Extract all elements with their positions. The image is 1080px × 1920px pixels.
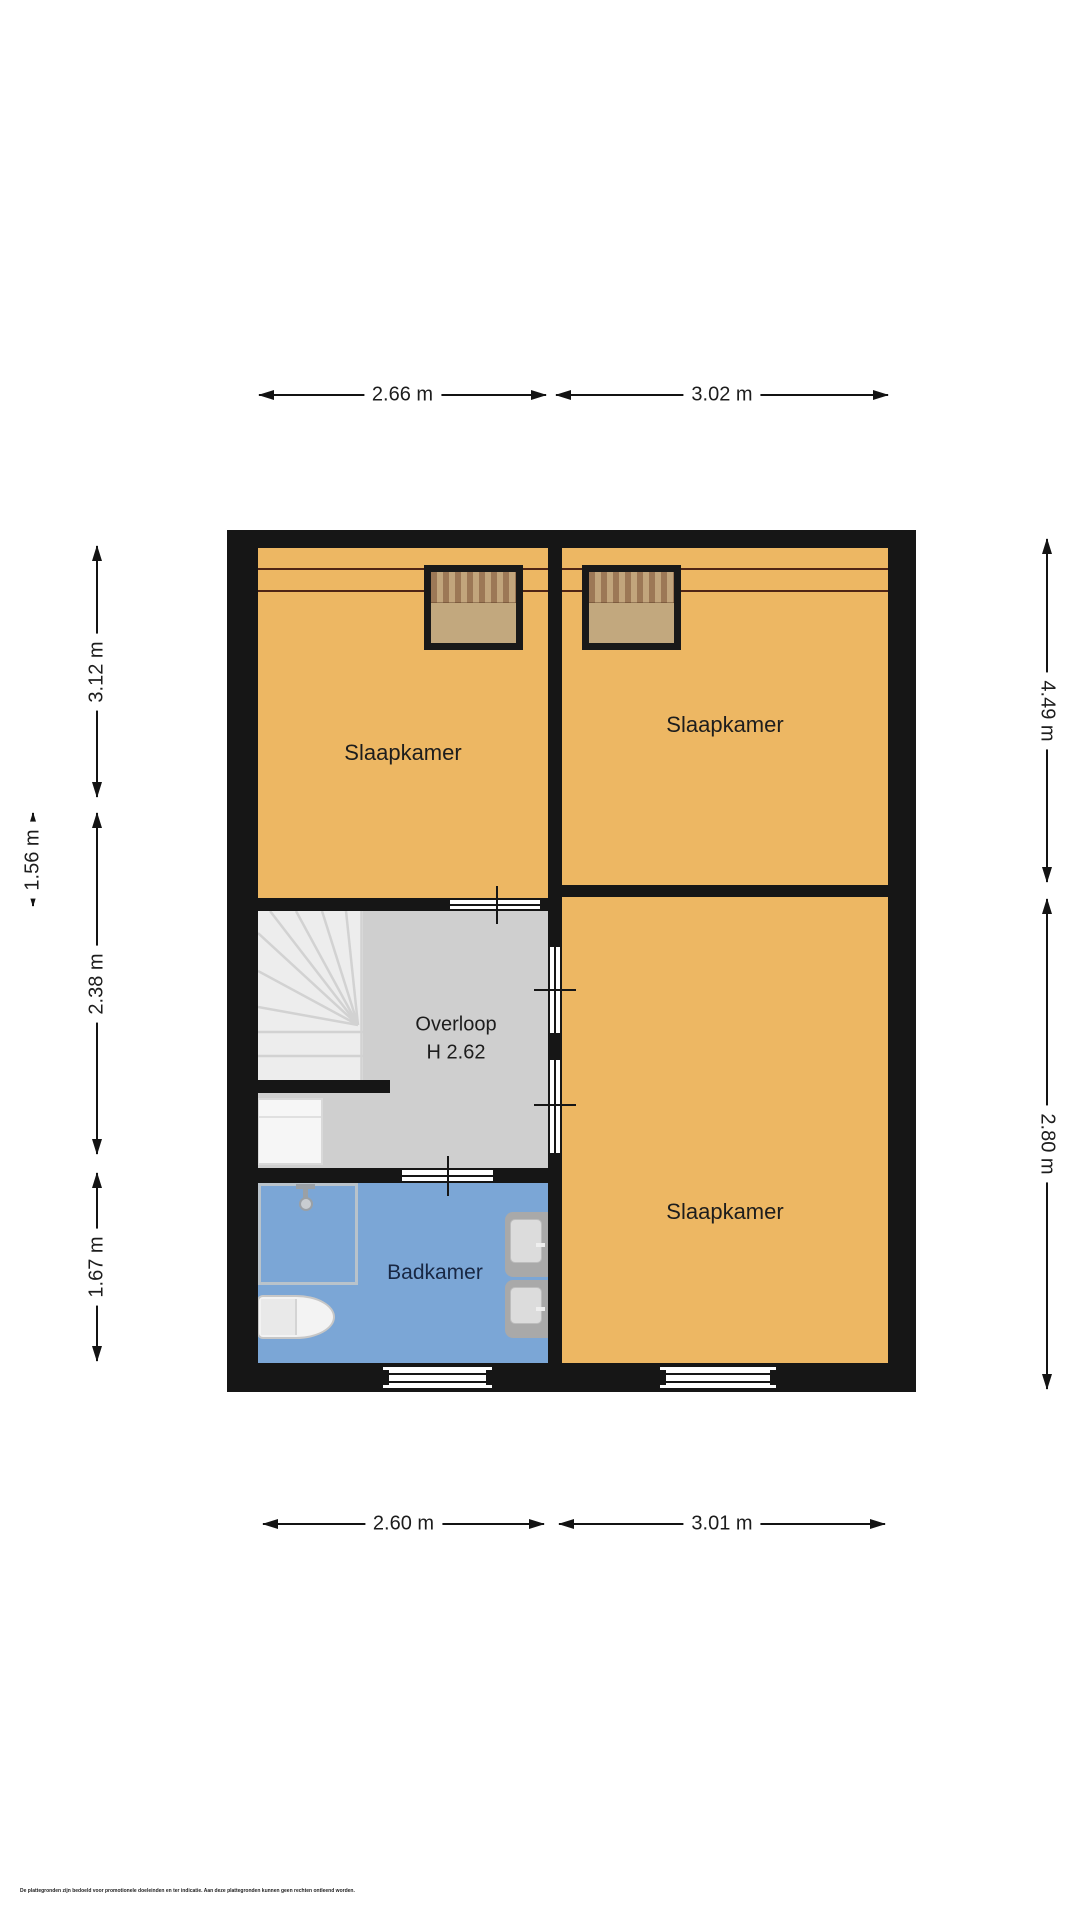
dimension-left-middle: 2.38 m [87, 812, 107, 1155]
floorplan-canvas: Slaapkamer Slaapkamer Slaapkamer Overloo… [0, 0, 1080, 1920]
window-post [383, 1370, 389, 1385]
dimension-top-left: 2.66 m [258, 385, 547, 405]
room-label-landing: Overloop [415, 1014, 496, 1037]
room-bedroom-bottom-right [562, 897, 888, 1363]
room-label-bedroom-top-left: Slaapkamer [344, 740, 461, 766]
wall-tick [447, 1156, 449, 1196]
wall-outer-bottom [227, 1363, 916, 1392]
door-opening-symbol [548, 1060, 562, 1153]
stairs-treads [258, 911, 363, 1080]
dimension-label: 2.66 m [364, 383, 441, 408]
wall-stair-stub [256, 1080, 390, 1093]
wall-center [548, 1033, 562, 1060]
shower-faucet-arm [296, 1184, 315, 1189]
dimension-left-upper: 3.12 m [87, 545, 107, 798]
sink-basin [510, 1287, 542, 1324]
dimension-right-upper: 4.49 m [1037, 538, 1057, 883]
wall-tick [534, 1104, 576, 1106]
wall-outer-top [227, 530, 916, 548]
window-post [486, 1370, 492, 1385]
ceiling-height-label: H 2.62 [427, 1042, 486, 1065]
toilet-icon [257, 1295, 335, 1339]
dimension-left-inner: 1.56 m [23, 812, 43, 907]
wall-bedrooms-divider [562, 885, 888, 897]
dimension-label: 3.02 m [683, 383, 760, 408]
sink-tap-icon [536, 1307, 545, 1311]
wall-center [548, 530, 562, 947]
dresser [257, 1098, 323, 1165]
sink-tap-icon [536, 1243, 545, 1247]
skylight-glass [589, 572, 674, 603]
room-label-bedroom-right: Slaapkamer [666, 712, 783, 738]
dimension-top-right: 3.02 m [555, 385, 889, 405]
wall-tick [496, 886, 498, 924]
dimension-label: 2.38 m [85, 945, 110, 1022]
dimension-label: 3.12 m [85, 633, 110, 710]
dimension-right-lower: 2.80 m [1037, 898, 1057, 1390]
window-post [770, 1370, 776, 1385]
dimension-label: 1.67 m [85, 1228, 110, 1305]
window-symbol [660, 1365, 776, 1390]
shower-head-icon [299, 1197, 313, 1211]
wall-outer-right [888, 530, 916, 1392]
sink-icon [505, 1212, 548, 1277]
room-label-bedroom-bottom-right: Slaapkamer [666, 1199, 783, 1225]
skylight-window [424, 565, 523, 650]
skylight-window [582, 565, 681, 650]
dimension-bottom-left: 2.60 m [262, 1514, 545, 1534]
dimension-label: 4.49 m [1035, 672, 1060, 749]
skylight-glass [431, 572, 516, 603]
room-label-bathroom: Badkamer [387, 1261, 483, 1285]
window-symbol [383, 1365, 492, 1390]
dimension-label: 2.60 m [365, 1512, 442, 1537]
sink-basin [510, 1219, 542, 1263]
stairs [258, 911, 363, 1080]
dimension-label: 1.56 m [21, 821, 46, 898]
window-post [660, 1370, 666, 1385]
wall-outer-left [227, 530, 258, 1392]
wall-center [548, 1153, 562, 1392]
dimension-label: 2.80 m [1035, 1105, 1060, 1182]
sink-icon [505, 1280, 548, 1338]
dimension-left-lower: 1.67 m [87, 1172, 107, 1362]
disclaimer-text: De plattegronden zijn bedoeld voor promo… [20, 1888, 355, 1894]
dimension-label: 3.01 m [683, 1512, 760, 1537]
dimension-bottom-right: 3.01 m [558, 1514, 886, 1534]
wall-tick [534, 989, 576, 991]
window-symbol [450, 898, 540, 911]
